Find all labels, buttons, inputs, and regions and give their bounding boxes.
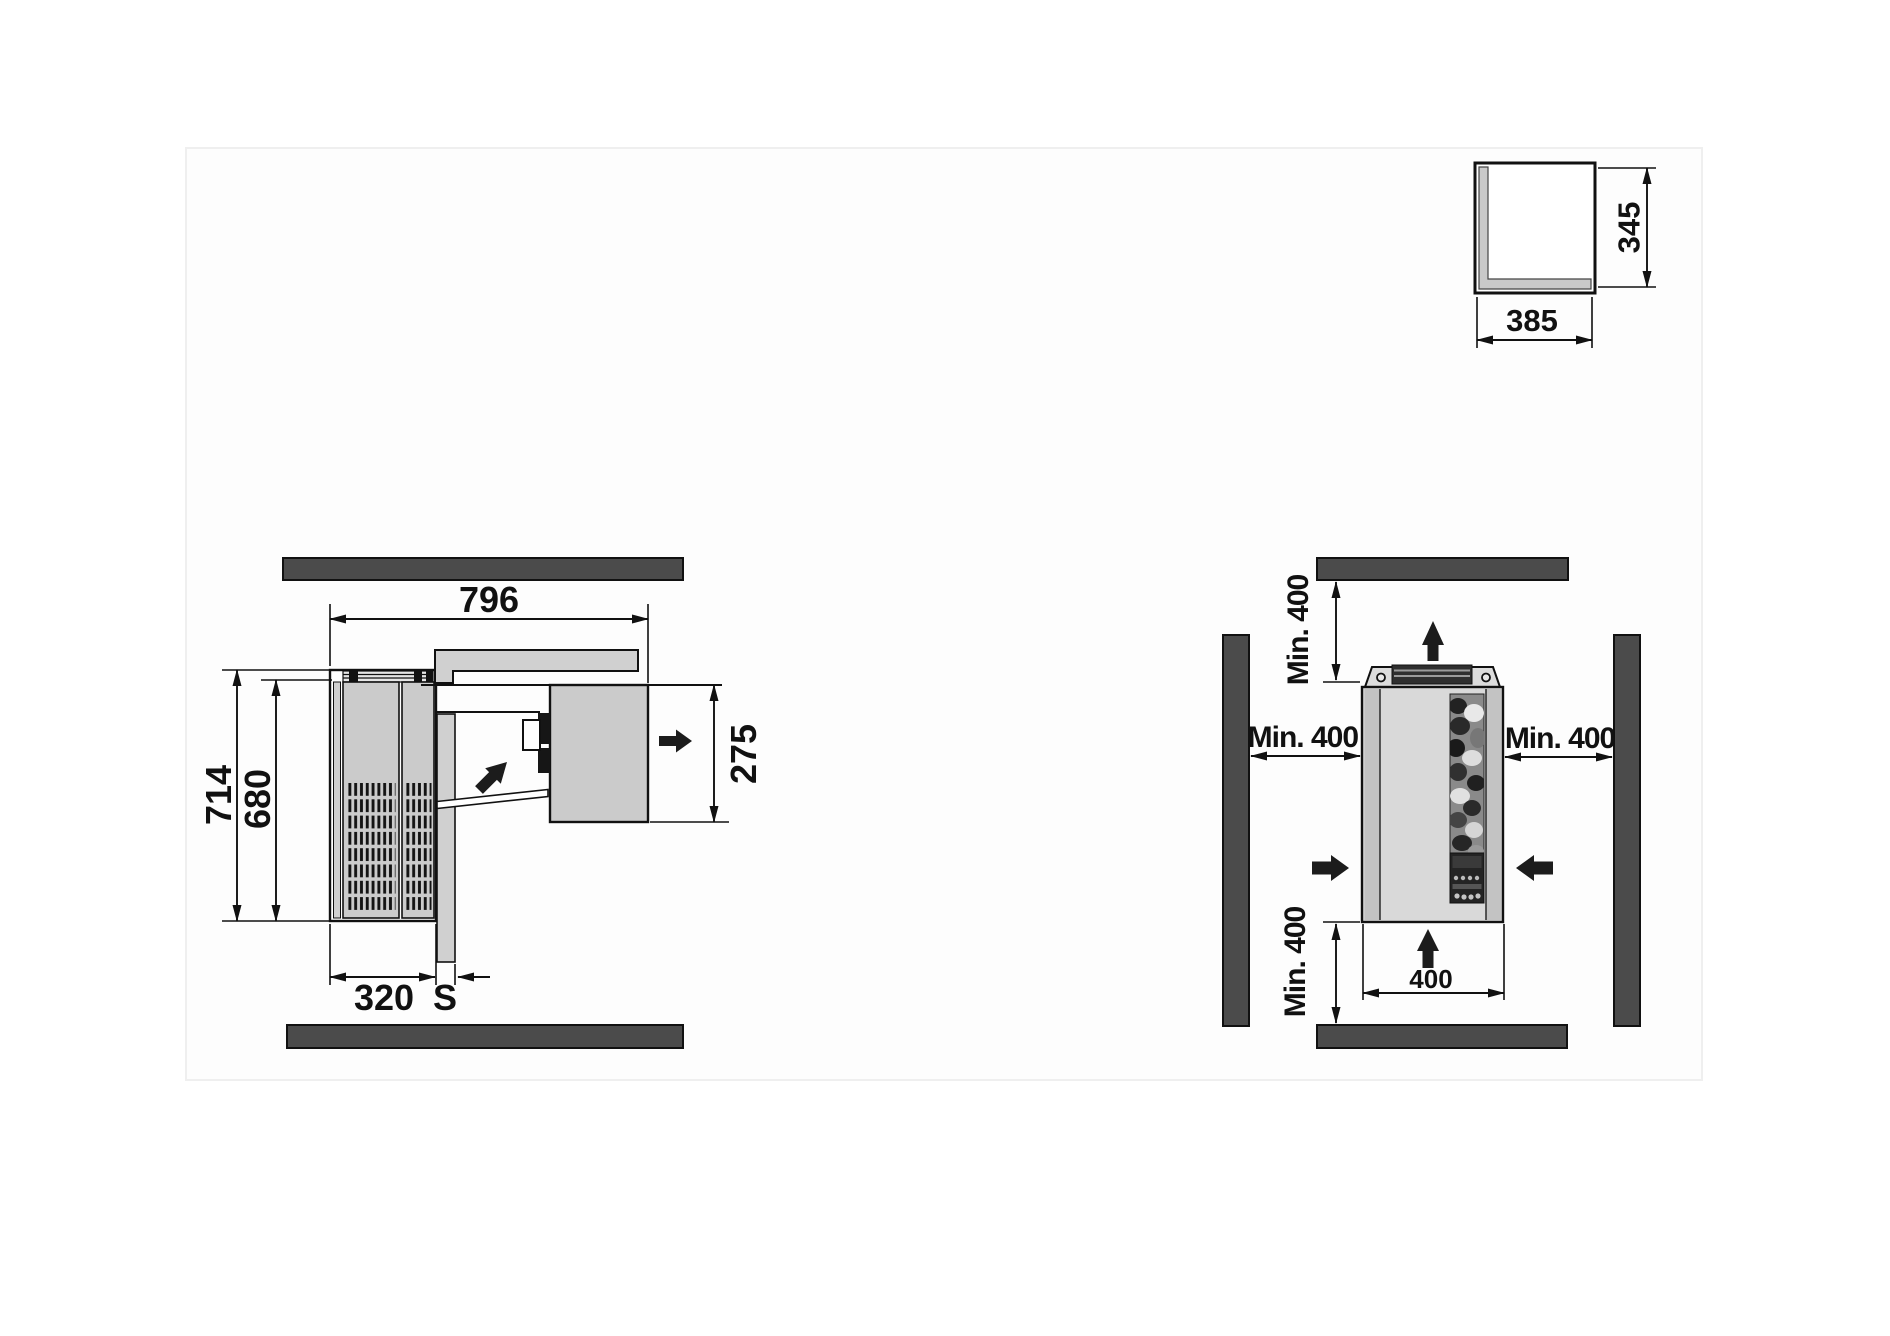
top-cap-rail <box>343 671 433 682</box>
obstacle-right <box>1614 635 1640 1026</box>
wall-segment-bottom <box>287 1025 683 1048</box>
obstacle-left <box>1223 635 1249 1026</box>
width-total-label: 714 <box>198 765 239 825</box>
unit-front <box>1362 665 1503 922</box>
evaporator-unit-plan <box>550 685 648 822</box>
condenser-unit-plan <box>330 670 436 921</box>
depth-outdoor-label: 320 <box>354 977 414 1018</box>
door-latch <box>523 720 540 750</box>
unit-width-label: 400 <box>1409 964 1452 994</box>
obstacle-top <box>1317 558 1568 580</box>
obstacle-bottom <box>1317 1025 1567 1048</box>
grille-slats-left <box>347 783 396 913</box>
cap-screw-right <box>1482 674 1490 682</box>
wall-segment-top <box>283 558 683 580</box>
width-body-label: 680 <box>237 769 278 829</box>
technical-drawing-page: 345 385 796 <box>0 0 1890 1336</box>
unit-rail-right <box>1486 689 1502 920</box>
evaporator-edge-strip <box>538 748 550 773</box>
clearance-bottom-label: Min. 400 <box>1279 906 1312 1017</box>
top-cap-ribs <box>1392 665 1472 684</box>
depth-indoor-label: 275 <box>723 724 764 784</box>
dimension-clearance-right: Min. 400 <box>1505 722 1616 757</box>
depth-total-label: 796 <box>459 579 519 620</box>
dimension-clearance-left: Min. 400 <box>1248 721 1360 756</box>
clearance-left-label: Min. 400 <box>1248 721 1359 754</box>
cutout-height-label: 345 <box>1612 202 1647 254</box>
clearance-right-label: Min. 400 <box>1505 722 1616 755</box>
wall-thickness-label: S <box>433 977 457 1018</box>
cutout-square <box>1475 163 1595 293</box>
installation-drawing: 345 385 796 <box>0 0 1890 1336</box>
coldroom-wall-panel <box>437 714 455 962</box>
control-panel <box>1450 853 1484 903</box>
cap-screw-left <box>1377 674 1385 682</box>
coil-window <box>1447 694 1486 857</box>
grille-slats-right <box>405 783 432 913</box>
cutout-width-label: 385 <box>1506 303 1558 338</box>
clearance-top-label: Min. 400 <box>1282 574 1315 685</box>
unit-rail-left <box>1365 689 1380 920</box>
